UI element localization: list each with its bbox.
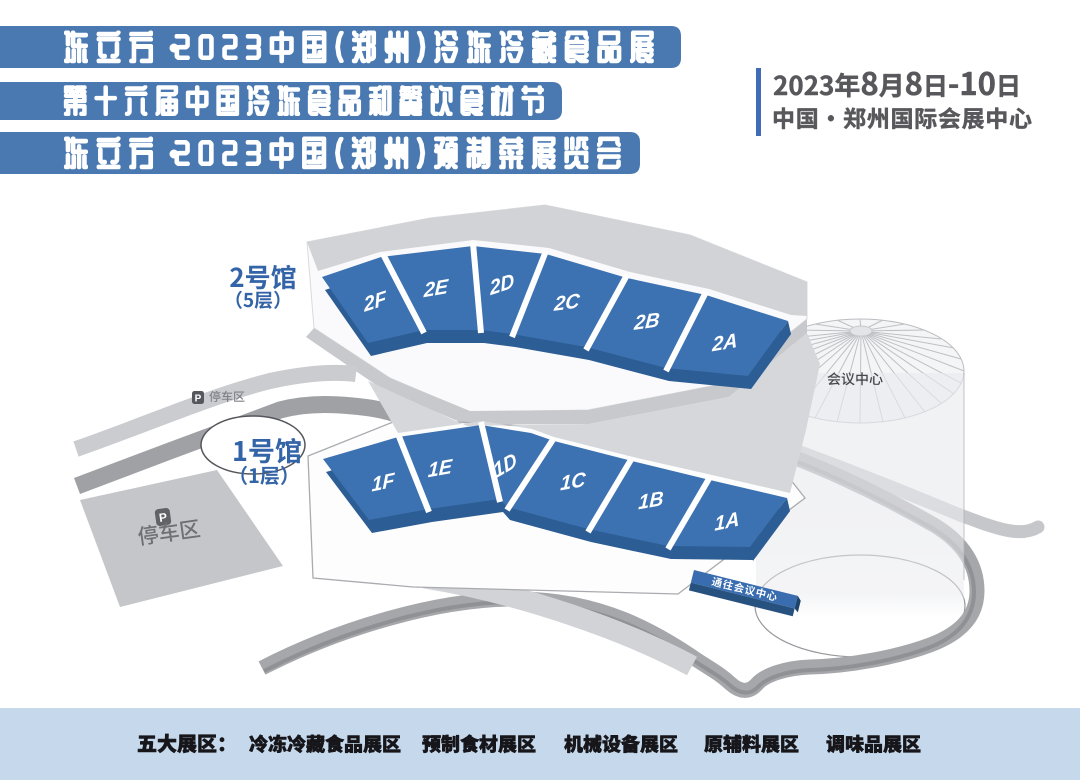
svg-text:2B: 2B — [632, 309, 660, 335]
svg-text:2C: 2C — [552, 290, 581, 316]
svg-text:P: P — [195, 394, 202, 405]
svg-text:1B: 1B — [638, 488, 664, 515]
svg-text:1E: 1E — [427, 456, 454, 483]
svg-text:1C: 1C — [560, 469, 587, 496]
